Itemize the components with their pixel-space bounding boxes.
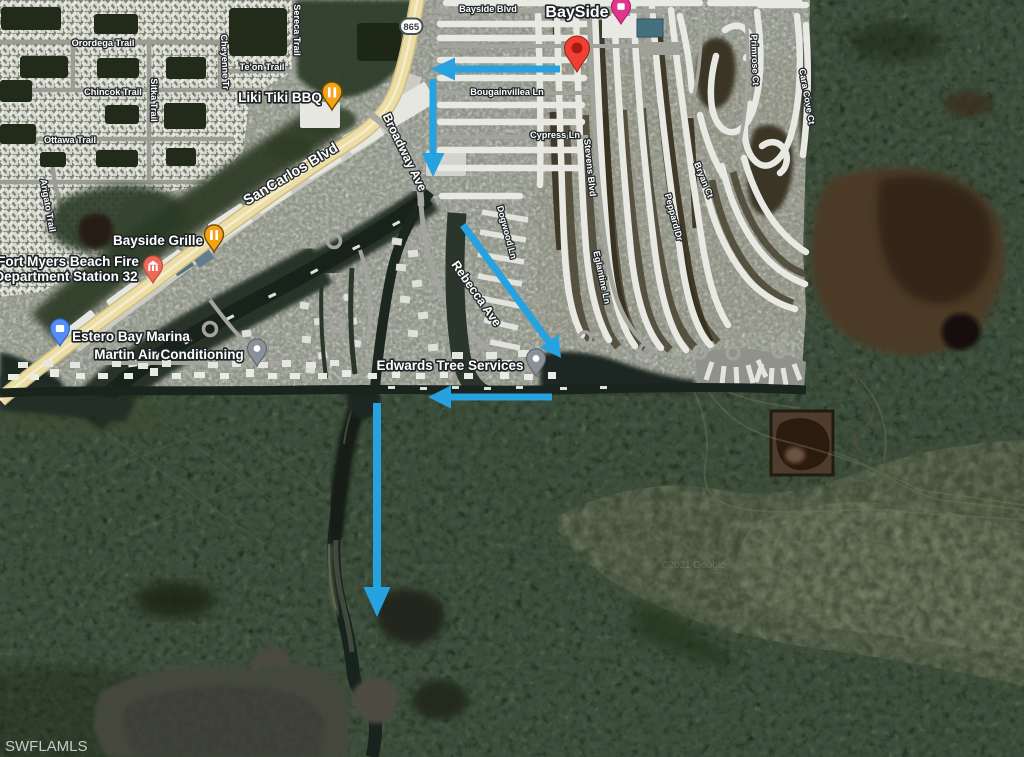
svg-text:Ottawa Trail: Ottawa Trail [44,135,96,145]
svg-text:Cypress Ln: Cypress Ln [530,130,580,140]
svg-text:BaySide: BaySide [545,4,608,21]
svg-text:SWFLAMLS: SWFLAMLS [5,738,88,755]
svg-text:Fort Myers Beach Fire: Fort Myers Beach Fire [0,254,139,269]
svg-text:Liki Tiki BBQ: Liki Tiki BBQ [238,90,322,105]
svg-text:Martin Air Conditioning: Martin Air Conditioning [94,347,243,362]
svg-text:Sitka Trail: Sitka Trail [149,78,159,121]
svg-text:Department Station 32: Department Station 32 [0,269,138,284]
svg-text:Sereca Trail: Sereca Trail [292,4,302,56]
svg-text:Primrose Ct: Primrose Ct [749,34,761,85]
svg-text:Chincok Trail: Chincok Trail [84,87,142,97]
svg-text:Edwards Tree Services: Edwards Tree Services [376,358,523,373]
svg-text:Orordega Trail: Orordega Trail [72,38,135,48]
svg-text:Cheyenne Tr: Cheyenne Tr [219,34,231,90]
svg-text:Te'on Trail: Te'on Trail [240,62,285,72]
svg-text:Bougainvillea Ln: Bougainvillea Ln [470,87,544,97]
svg-text:Bayside Grille: Bayside Grille [113,233,204,248]
svg-text:Bayside Blvd: Bayside Blvd [459,4,517,14]
svg-text:©2021 Google: ©2021 Google [661,560,726,571]
svg-text:865: 865 [403,22,420,33]
svg-text:Estero Bay Marina: Estero Bay Marina [72,329,190,344]
